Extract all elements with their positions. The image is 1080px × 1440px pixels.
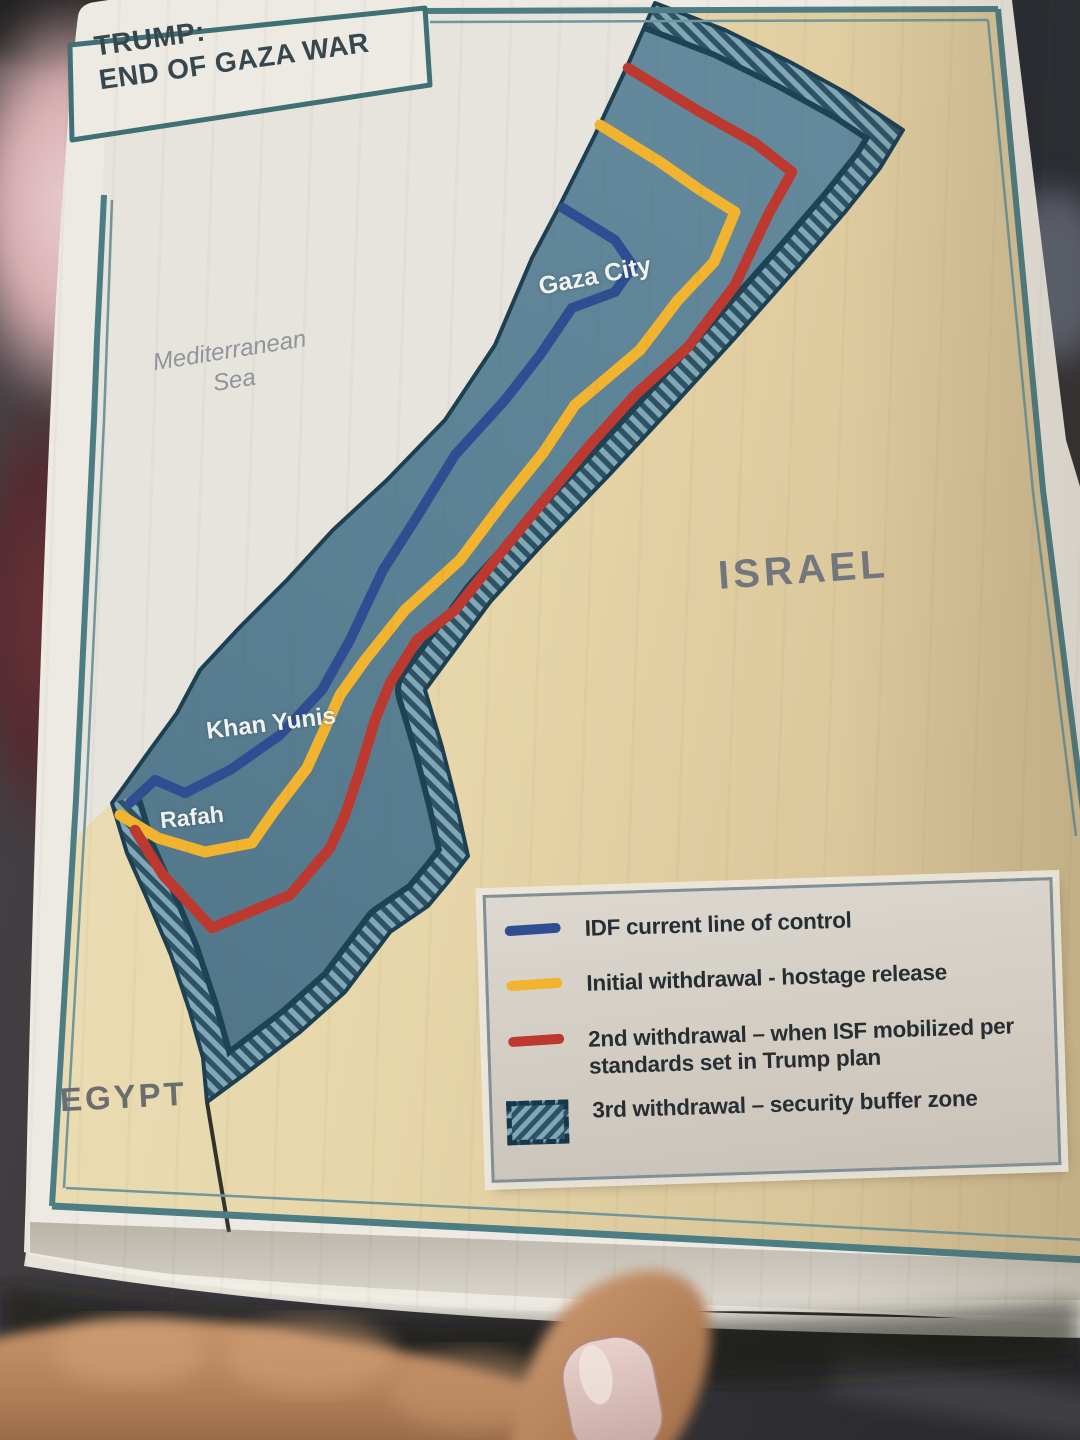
legend-label-initial-withdrawal: Initial withdrawal - hostage release <box>586 959 947 998</box>
legend-row-initial-withdrawal: Initial withdrawal - hostage release <box>502 956 1039 1000</box>
second-withdrawal-swatch <box>508 1033 565 1047</box>
initial-withdrawal-swatch <box>506 978 563 992</box>
legend-label-idf: IDF current line of control <box>584 906 852 942</box>
legend-row-idf: IDF current line of control <box>500 901 1037 945</box>
legend-label-third-withdrawal: 3rd withdrawal – security buffer zone <box>592 1084 978 1124</box>
photo-of-printed-map: TRUMP: END OF GAZA WAR Mediterranean Sea… <box>0 0 1080 1440</box>
egypt-label: EGYPT <box>59 1075 188 1120</box>
hand-holding-paper <box>0 1130 1080 1440</box>
knuckle-highlight <box>225 1318 395 1394</box>
legend-label-second-withdrawal: 2nd withdrawal – when ISF mobilized per … <box>588 1011 1042 1080</box>
legend-row-second-withdrawal: 2nd withdrawal – when ISF mobilized per … <box>504 1011 1041 1083</box>
knuckle-highlight <box>55 1318 205 1386</box>
idf-line-swatch <box>504 923 561 937</box>
